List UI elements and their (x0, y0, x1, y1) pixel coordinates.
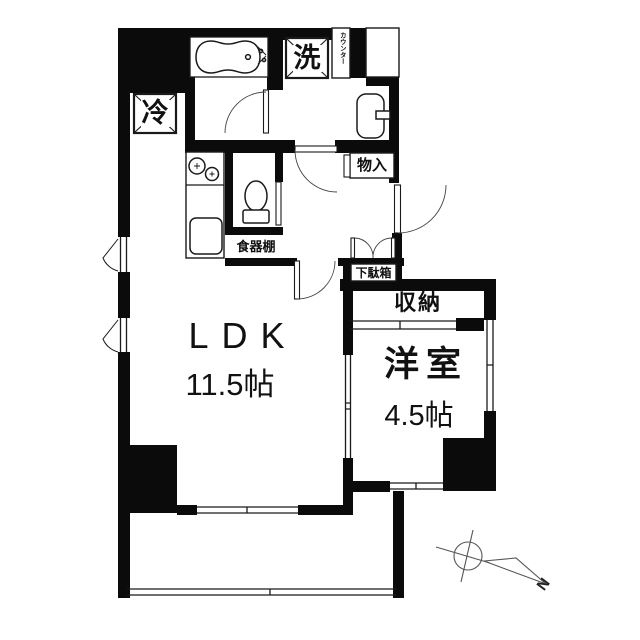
room-partition-sliding (346, 355, 351, 458)
door-arc (225, 92, 266, 133)
wall (350, 481, 390, 492)
wall (177, 505, 197, 515)
western-room-size-label: 4.5帖 (356, 395, 482, 437)
sink-icon (190, 218, 222, 254)
western-room-label: 洋室 (356, 341, 489, 387)
wall (484, 411, 496, 441)
wall (283, 140, 295, 153)
entry-door-arc (398, 185, 446, 233)
door-leaf (392, 238, 396, 258)
casement-window-swing (103, 320, 118, 352)
closet-label: 収納 (355, 291, 481, 315)
compass-axis (461, 530, 473, 582)
washbasin-handle (376, 111, 390, 119)
toilet-tank-icon (243, 210, 269, 223)
wall (393, 491, 404, 598)
door-leaf (351, 238, 355, 258)
wall (484, 291, 496, 320)
window (390, 483, 443, 489)
hall-storage-label: 物入 (350, 153, 394, 178)
wall (443, 438, 496, 491)
washing-machine-text: 洗 (293, 45, 322, 72)
ldk-room-label: LDK (150, 316, 323, 356)
exterior-alcove (366, 28, 399, 77)
wall (350, 28, 368, 78)
door-leaf (276, 182, 281, 225)
refrigerator-label: 冷 (134, 94, 176, 133)
refrigerator-text: 冷 (141, 100, 170, 127)
door-leaf (264, 90, 269, 133)
floorplan-image: LDK 11.5帖 洋室 4.5帖 収納 物入 下駄箱 食器棚 洗 冷 カウンタ… (0, 0, 640, 640)
ldk-size-label: 11.5帖 (150, 363, 310, 405)
sliding-window (197, 507, 298, 513)
wall (275, 153, 283, 182)
bathtub-drain (246, 55, 251, 60)
double-door-arc (355, 238, 391, 258)
window-gap (118, 237, 130, 272)
closet-sliding-door (347, 321, 456, 329)
wall (121, 445, 177, 513)
window-gap (118, 318, 130, 352)
wall (225, 153, 233, 235)
shoe-cabinet-label: 下駄箱 (351, 264, 396, 281)
closet-door-pivot (344, 321, 353, 330)
wall (225, 258, 297, 266)
slide-door-end-cap (456, 318, 484, 331)
toilet-bowl-icon (245, 181, 267, 211)
door-leaf (295, 146, 337, 152)
casement-window-swing (103, 239, 118, 271)
door-leaf (295, 261, 300, 299)
wall (267, 28, 283, 90)
wall (185, 140, 283, 153)
door-arc (295, 150, 337, 192)
entry-door-leaf (395, 185, 401, 233)
compass (436, 530, 546, 584)
wall (298, 505, 353, 515)
wall (225, 227, 283, 235)
dish-shelf-label: 食器棚 (229, 236, 283, 256)
balcony-edge (127, 589, 396, 595)
washing-machine-label: 洗 (286, 38, 328, 78)
door-arc (297, 261, 335, 299)
counter-label: カウンター (332, 29, 350, 80)
wall (335, 140, 399, 153)
